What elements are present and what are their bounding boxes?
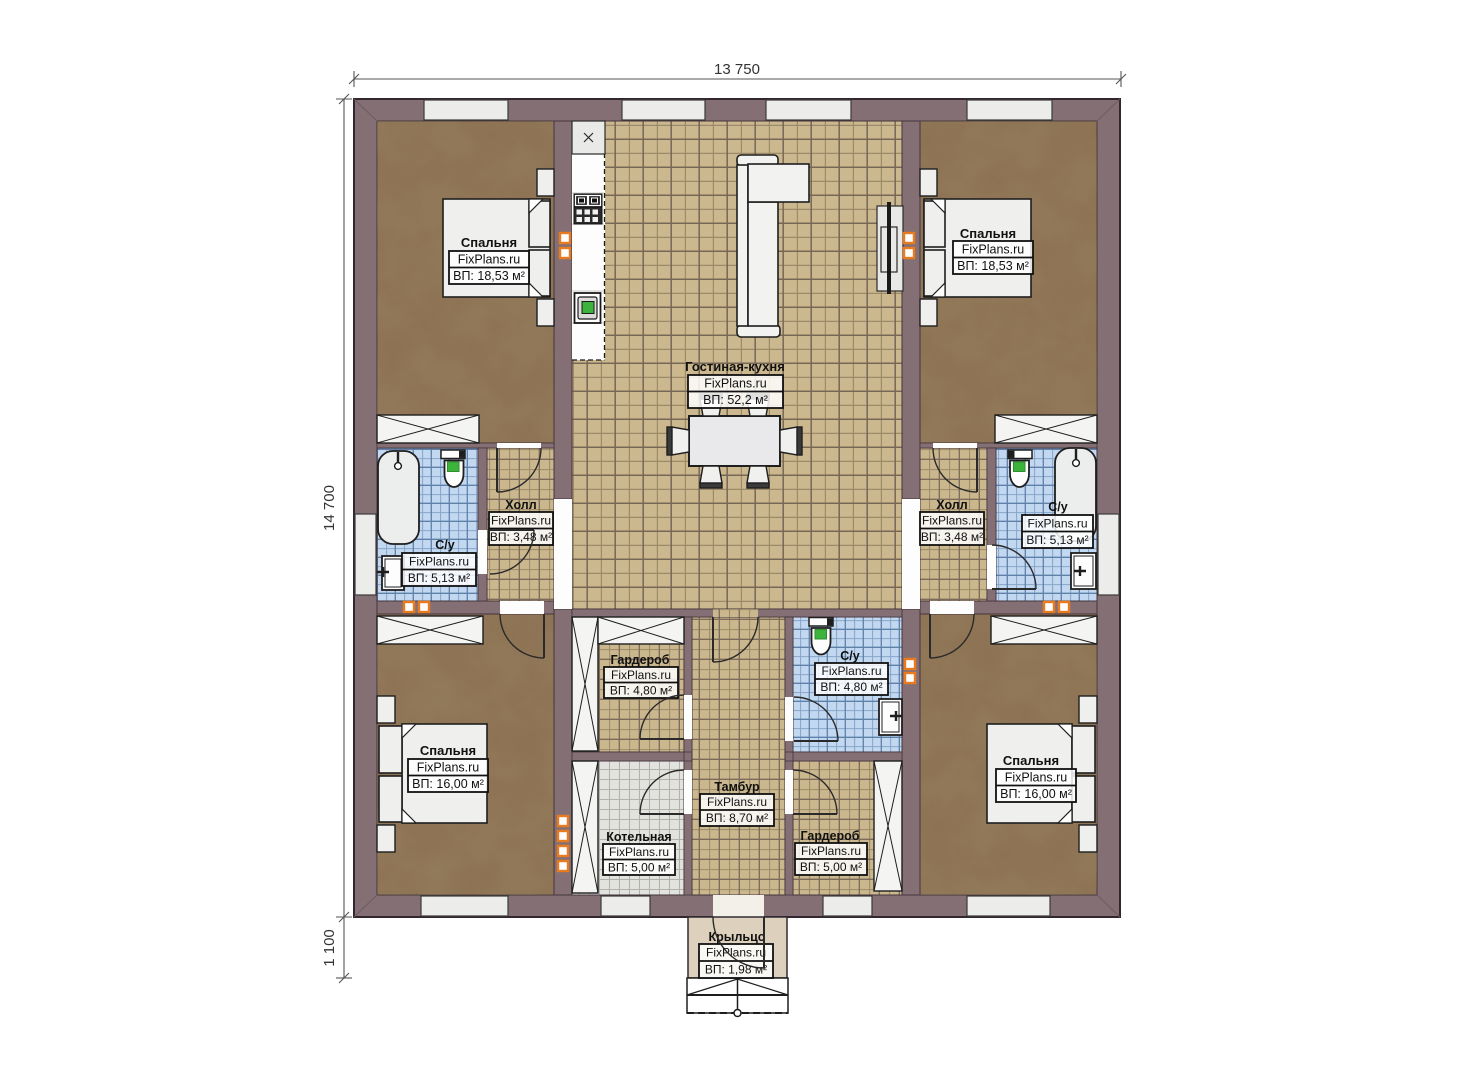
svg-text:ВП: 4,80 м²: ВП: 4,80 м² bbox=[610, 684, 672, 698]
svg-text:Холл: Холл bbox=[505, 498, 536, 512]
svg-text:FixPlans.ru: FixPlans.ru bbox=[962, 242, 1025, 256]
svg-text:FixPlans.ru: FixPlans.ru bbox=[609, 845, 669, 859]
svg-text:ВП: 8,70 м²: ВП: 8,70 м² bbox=[706, 811, 768, 825]
svg-text:Гостиная-кухня: Гостиная-кухня bbox=[685, 359, 785, 374]
svg-text:FixPlans.ru: FixPlans.ru bbox=[611, 668, 671, 682]
svg-text:FixPlans.ru: FixPlans.ru bbox=[922, 514, 982, 528]
svg-text:FixPlans.ru: FixPlans.ru bbox=[704, 376, 767, 390]
svg-text:FixPlans.ru: FixPlans.ru bbox=[458, 252, 521, 266]
svg-text:С/у: С/у bbox=[1048, 500, 1068, 514]
svg-text:ВП: 1,98 м²: ВП: 1,98 м² bbox=[705, 963, 767, 977]
svg-text:ВП: 3,48 м²: ВП: 3,48 м² bbox=[921, 530, 983, 544]
svg-text:FixPlans.ru: FixPlans.ru bbox=[801, 844, 861, 858]
svg-text:Котельная: Котельная bbox=[606, 830, 671, 844]
svg-text:ВП: 18,53 м²: ВП: 18,53 м² bbox=[453, 269, 525, 283]
svg-text:Спальня: Спальня bbox=[461, 235, 517, 250]
svg-text:13 750: 13 750 bbox=[714, 61, 760, 78]
svg-text:С/у: С/у bbox=[840, 649, 860, 663]
svg-text:ВП: 16,00 м²: ВП: 16,00 м² bbox=[412, 777, 484, 791]
svg-text:Спальня: Спальня bbox=[420, 743, 476, 758]
svg-text:FixPlans.ru: FixPlans.ru bbox=[1027, 517, 1087, 531]
svg-text:1 100: 1 100 bbox=[321, 929, 338, 967]
svg-text:С/у: С/у bbox=[435, 538, 455, 552]
svg-text:FixPlans.ru: FixPlans.ru bbox=[417, 761, 480, 775]
svg-text:FixPlans.ru: FixPlans.ru bbox=[409, 555, 469, 569]
svg-text:ВП: 4,80 м²: ВП: 4,80 м² bbox=[820, 680, 882, 694]
svg-text:ВП: 3,48 м²: ВП: 3,48 м² bbox=[490, 530, 552, 544]
svg-text:Тамбур: Тамбур bbox=[714, 780, 760, 794]
svg-text:FixPlans.ru: FixPlans.ru bbox=[821, 664, 881, 678]
svg-text:ВП: 5,13 м²: ВП: 5,13 м² bbox=[408, 571, 470, 585]
svg-text:FixPlans.ru: FixPlans.ru bbox=[706, 946, 766, 960]
svg-text:Спальня: Спальня bbox=[960, 226, 1016, 241]
svg-text:ВП: 16,00 м²: ВП: 16,00 м² bbox=[1000, 787, 1072, 801]
svg-text:Холл: Холл bbox=[936, 498, 967, 512]
svg-text:FixPlans.ru: FixPlans.ru bbox=[491, 514, 551, 528]
svg-text:Спальня: Спальня bbox=[1003, 753, 1059, 768]
svg-text:ВП: 5,13 м²: ВП: 5,13 м² bbox=[1026, 533, 1088, 547]
svg-text:Гардероб: Гардероб bbox=[610, 653, 669, 667]
svg-text:14 700: 14 700 bbox=[321, 485, 338, 531]
svg-text:FixPlans.ru: FixPlans.ru bbox=[1005, 771, 1068, 785]
svg-text:ВП: 5,00 м²: ВП: 5,00 м² bbox=[800, 860, 862, 874]
svg-text:Гардероб: Гардероб bbox=[800, 829, 859, 843]
svg-text:ВП: 5,00 м²: ВП: 5,00 м² bbox=[608, 861, 670, 875]
svg-text:ВП: 18,53 м²: ВП: 18,53 м² bbox=[957, 259, 1029, 273]
svg-text:ВП: 52,2 м²: ВП: 52,2 м² bbox=[703, 393, 768, 407]
svg-text:FixPlans.ru: FixPlans.ru bbox=[707, 795, 767, 809]
